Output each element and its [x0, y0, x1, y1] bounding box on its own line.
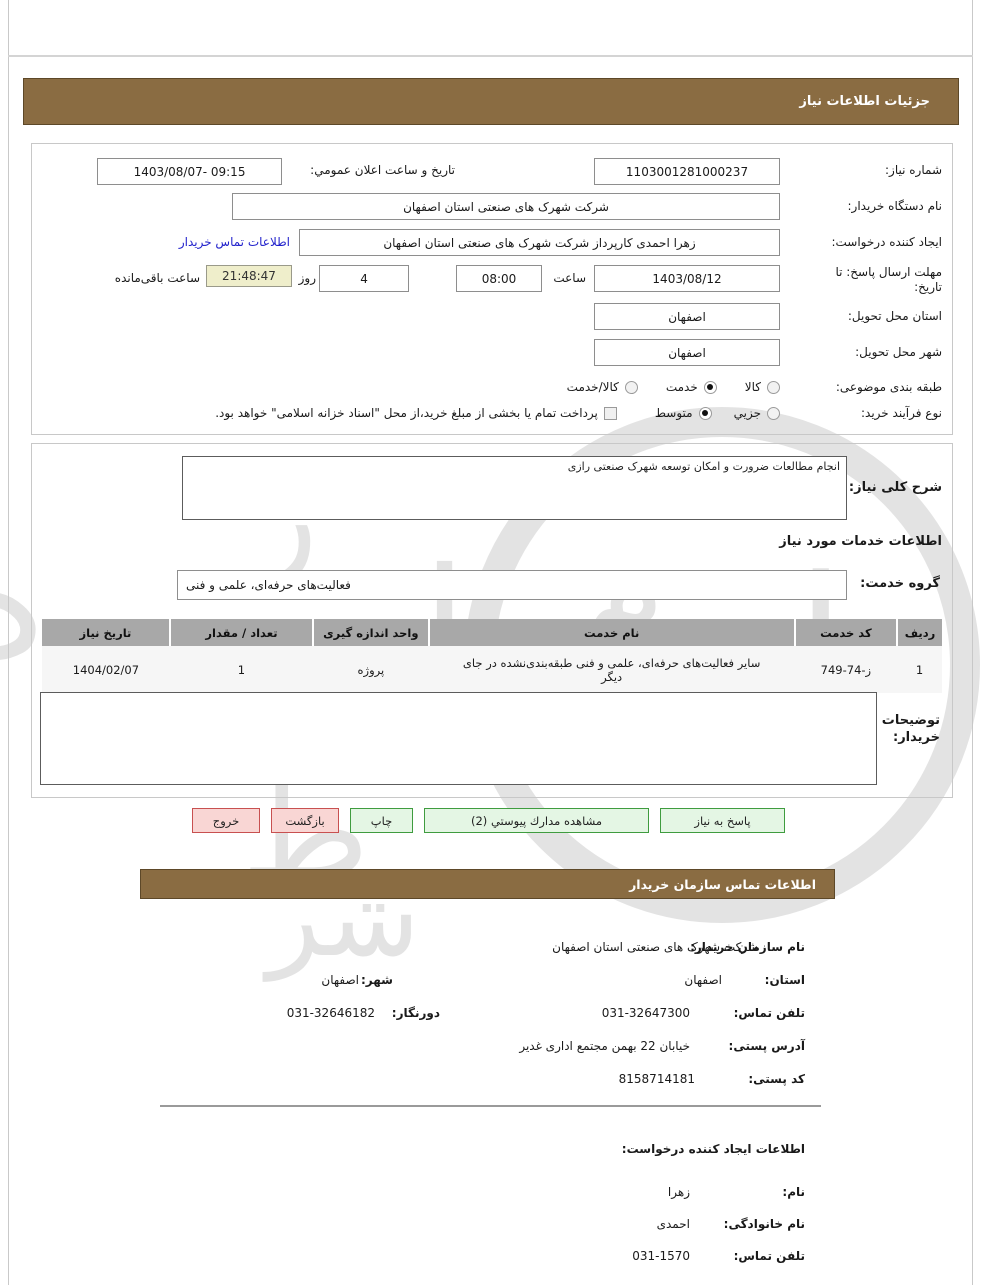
province-field[interactable]: اصفهان — [594, 303, 780, 330]
radio-partial-icon[interactable] — [767, 407, 780, 420]
deadline-date-field[interactable]: 1403/08/12 — [594, 265, 780, 292]
process-label: نوع فرآیند خرید: — [861, 406, 942, 420]
view-docs-button[interactable]: مشاهده مدارك پیوستي (2) — [424, 808, 649, 833]
creator-label: ایجاد کننده درخواست: — [831, 235, 942, 249]
cell-need-date: 1404/02/07 — [42, 646, 170, 693]
radio-service-label: خدمت — [666, 380, 698, 394]
radio-service-icon[interactable] — [704, 381, 717, 394]
creator-phone-value: 031-1570 — [632, 1249, 690, 1263]
contact-phone-value: 031-32647300 — [602, 1006, 690, 1020]
fax-label: دورنگار: — [392, 1006, 440, 1020]
postal-label: کد پستی: — [748, 1072, 805, 1086]
buyer-notes-label: توضیحات خریدار: — [868, 712, 940, 746]
deadline-time: 08:00 — [482, 272, 517, 286]
announce-value: 1403/08/07- 09:15 — [134, 165, 246, 179]
contact-divider — [160, 1105, 821, 1107]
deadline-time-field[interactable]: 08:00 — [456, 265, 542, 292]
buyer-org-value: شرکت شهرک های صنعتی استان اصفهان — [403, 200, 609, 214]
cell-service-code: ز-74-749 — [795, 646, 897, 693]
need-details-panel: شماره نیاز: 1103001281000237 تاریخ و ساع… — [31, 143, 953, 435]
col-row-no: ردیف — [897, 619, 942, 646]
contact-city-label: شهر: — [361, 973, 393, 987]
days-label: روز — [299, 271, 316, 285]
col-unit: واحد اندازه گیری — [313, 619, 429, 646]
deadline-date: 1403/08/12 — [652, 272, 721, 286]
need-no-field[interactable]: 1103001281000237 — [594, 158, 780, 185]
city-value: اصفهان — [668, 346, 706, 360]
address-value: خیابان 22 بهمن مجتمع اداری غدیر — [519, 1039, 690, 1053]
radio-medium[interactable]: متوسط — [655, 406, 712, 420]
announce-field[interactable]: 1403/08/07- 09:15 — [97, 158, 282, 185]
services-panel: شرح کلی نیاز: انجام مطالعات ضرورت و امکا… — [31, 443, 953, 798]
treasury-checkbox[interactable] — [604, 407, 617, 420]
page: ه م ر با ل م ط شر جزئیات اطلاعات نیاز شم… — [0, 0, 981, 1285]
creator-family-label: نام خانوادگی: — [724, 1217, 805, 1231]
hour-label: ساعت — [553, 271, 586, 285]
need-no-label: شماره نیاز: — [885, 163, 942, 177]
city-label: شهر محل تحویل: — [855, 345, 942, 359]
creator-value: زهرا احمدی کارپرداز شرکت شهرک های صنعتی … — [383, 236, 695, 250]
radio-goods-service-label: کالا/خدمت — [567, 380, 619, 394]
fax-value: 031-32646182 — [287, 1006, 375, 1020]
contact-city-value: اصفهان — [321, 973, 359, 987]
services-heading: اطلاعات خدمات مورد نیاز — [779, 534, 942, 549]
radio-goods-icon[interactable] — [767, 381, 780, 394]
province-value: اصفهان — [668, 310, 706, 324]
days-value: 4 — [360, 272, 368, 286]
cell-quantity: 1 — [170, 646, 313, 693]
service-group-value: فعالیت‌های حرفه‌ای، علمی و فنی — [186, 578, 351, 592]
service-group-field[interactable]: فعالیت‌های حرفه‌ای، علمی و فنی — [177, 570, 847, 600]
subject-options: کالا خدمت کالا/خدمت — [567, 378, 780, 396]
treasury-checkbox-option[interactable]: پرداخت تمام یا بخشی از مبلغ خرید،از محل … — [215, 406, 617, 420]
creator-field[interactable]: زهرا احمدی کارپرداز شرکت شهرک های صنعتی … — [299, 229, 780, 256]
radio-goods-service-icon[interactable] — [625, 381, 638, 394]
col-service-code: کد خدمت — [795, 619, 897, 646]
table-row: 1 ز-74-749 سایر فعالیت‌های حرفه‌ای، علمی… — [42, 646, 942, 693]
back-button[interactable]: بازگشت — [271, 808, 339, 833]
section-header-buyer-contact: اطلاعات تماس سازمان خریدار — [140, 869, 835, 899]
org-value: شرکت شهرک های صنعتی استان اصفهان — [552, 940, 758, 954]
section2-title: اطلاعات تماس سازمان خریدار — [629, 877, 816, 892]
treasury-checkbox-label: پرداخت تمام یا بخشی از مبلغ خرید،از محل … — [215, 406, 598, 420]
province-label: استان محل تحویل: — [848, 309, 942, 323]
cell-service-name: سایر فعالیت‌های حرفه‌ای، علمی و فنی طبقه… — [429, 646, 795, 693]
creator-family-value: احمدی — [657, 1217, 690, 1231]
deadline-label: مهلت ارسال پاسخ: تا تاریخ: — [822, 265, 942, 295]
need-no-value: 1103001281000237 — [626, 165, 748, 179]
creator-name-value: زهرا — [668, 1185, 690, 1199]
exit-button[interactable]: خروج — [192, 808, 260, 833]
announce-label: تاریخ و ساعت اعلان عمومي: — [310, 163, 455, 177]
creator-phone-label: تلفن تماس: — [734, 1249, 805, 1263]
cell-row-no: 1 — [897, 646, 942, 693]
need-desc-textarea[interactable]: انجام مطالعات ضرورت و امکان توسعه شهرک ص… — [182, 456, 847, 520]
radio-service[interactable]: خدمت — [666, 380, 717, 394]
respond-button[interactable]: پاسخ به نیاز — [660, 808, 785, 833]
section-header-need-details: جزئیات اطلاعات نیاز — [23, 78, 959, 125]
process-options: جزیي متوسط پرداخت تمام یا بخشی از مبلغ خ… — [215, 404, 780, 422]
col-need-date: تاریخ نیاز — [42, 619, 170, 646]
radio-medium-label: متوسط — [655, 406, 693, 420]
action-buttons: پاسخ به نیاز مشاهده مدارك پیوستي (2) چاپ… — [192, 808, 785, 833]
print-button[interactable]: چاپ — [350, 808, 413, 833]
buyer-notes-textarea[interactable] — [40, 692, 877, 785]
service-group-label: گروه خدمت: — [860, 576, 940, 591]
buyer-org-field[interactable]: شرکت شهرک های صنعتی استان اصفهان — [232, 193, 780, 220]
radio-medium-icon[interactable] — [699, 407, 712, 420]
countdown-timer: 21:48:47 — [206, 265, 292, 287]
days-field[interactable]: 4 — [319, 265, 409, 292]
city-field[interactable]: اصفهان — [594, 339, 780, 366]
need-desc-value: انجام مطالعات ضرورت و امکان توسعه شهرک ص… — [568, 460, 840, 473]
contact-province-label: استان: — [765, 973, 805, 987]
remaining-label: ساعت باقی‌مانده — [115, 271, 200, 285]
services-table: ردیف کد خدمت نام خدمت واحد اندازه گیری ت… — [42, 619, 942, 693]
col-quantity: تعداد / مقدار — [170, 619, 313, 646]
services-table-header-row: ردیف کد خدمت نام خدمت واحد اندازه گیری ت… — [42, 619, 942, 646]
contact-province-value: اصفهان — [684, 973, 722, 987]
address-label: آدرس پستی: — [729, 1039, 805, 1053]
creator-info-heading: اطلاعات ایجاد کننده درخواست: — [622, 1142, 805, 1156]
buyer-contact-link[interactable]: اطلاعات تماس خریدار — [179, 235, 290, 249]
radio-goods[interactable]: کالا — [745, 380, 780, 394]
timer-value: 21:48:47 — [222, 269, 276, 283]
buyer-org-label: نام دستگاه خریدار: — [848, 199, 943, 213]
radio-goods-service[interactable]: کالا/خدمت — [567, 380, 638, 394]
need-desc-label: شرح کلی نیاز: — [849, 480, 942, 495]
section-title: جزئیات اطلاعات نیاز — [799, 94, 930, 109]
radio-partial[interactable]: جزیي — [734, 406, 780, 420]
subject-label: طبقه بندی موضوعی: — [836, 380, 942, 394]
radio-partial-label: جزیي — [734, 406, 761, 420]
contact-phone-label: تلفن تماس: — [734, 1006, 805, 1020]
radio-goods-label: کالا — [745, 380, 761, 394]
cell-unit: پروژه — [313, 646, 429, 693]
col-service-name: نام خدمت — [429, 619, 795, 646]
creator-name-label: نام: — [782, 1185, 805, 1199]
postal-value: 8158714181 — [619, 1072, 695, 1086]
